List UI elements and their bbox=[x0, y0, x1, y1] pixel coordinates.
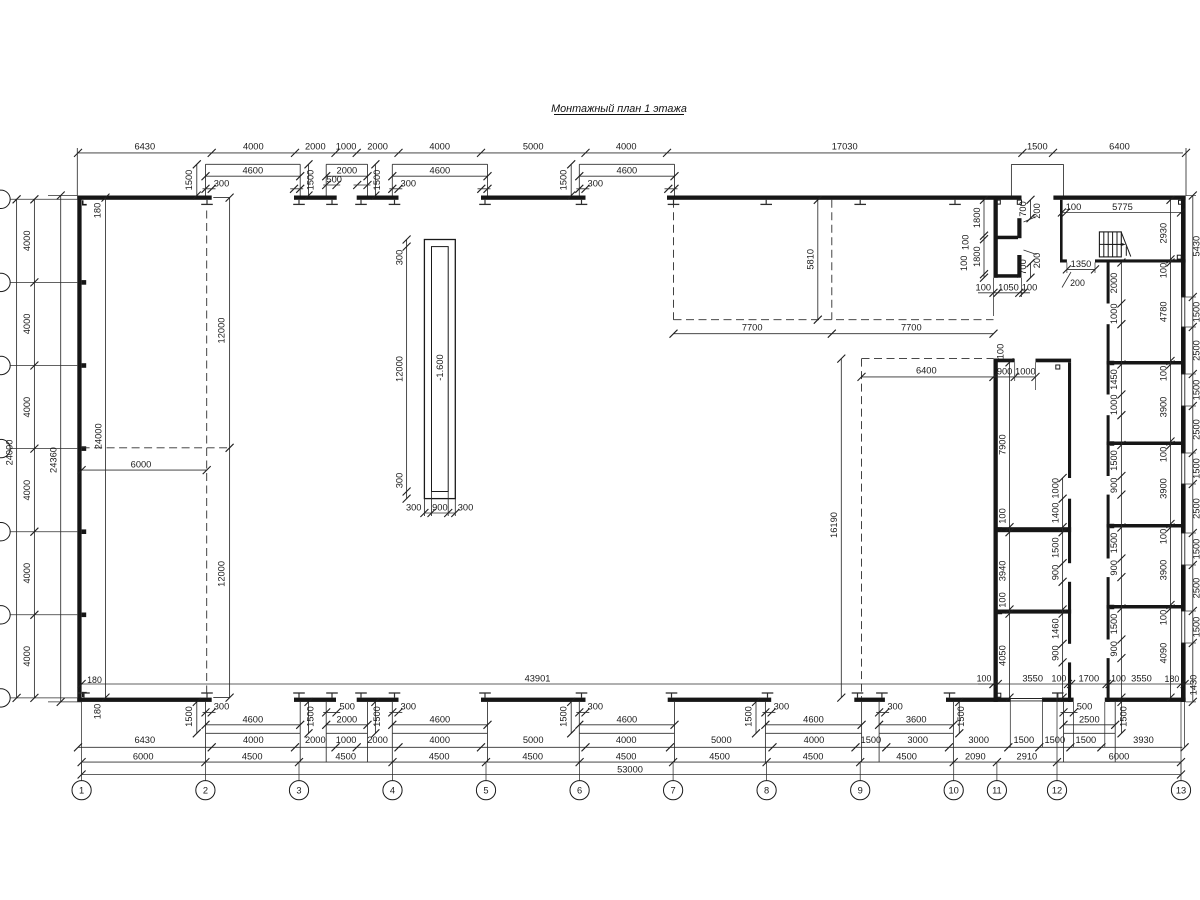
svg-text:9: 9 bbox=[858, 786, 863, 796]
svg-text:-1.600: -1.600 bbox=[435, 354, 445, 380]
svg-text:6400: 6400 bbox=[1109, 141, 1130, 151]
svg-text:300: 300 bbox=[214, 702, 230, 712]
svg-text:2000: 2000 bbox=[367, 141, 388, 151]
svg-text:5775: 5775 bbox=[1112, 202, 1133, 212]
svg-text:1500: 1500 bbox=[1027, 141, 1048, 151]
svg-text:2000: 2000 bbox=[305, 735, 326, 745]
svg-text:2500: 2500 bbox=[1192, 419, 1200, 440]
svg-text:300: 300 bbox=[887, 702, 903, 712]
svg-text:4600: 4600 bbox=[617, 165, 638, 175]
svg-text:3600: 3600 bbox=[906, 714, 927, 724]
svg-text:180: 180 bbox=[1165, 674, 1180, 684]
svg-text:100: 100 bbox=[1158, 610, 1168, 626]
svg-text:1500: 1500 bbox=[372, 706, 382, 727]
svg-text:7900: 7900 bbox=[997, 434, 1007, 455]
svg-text:1350: 1350 bbox=[1071, 259, 1092, 269]
svg-text:1500: 1500 bbox=[372, 170, 382, 191]
svg-text:2500: 2500 bbox=[1079, 714, 1100, 724]
svg-text:700: 700 bbox=[1018, 259, 1028, 275]
svg-text:300: 300 bbox=[458, 503, 474, 513]
svg-text:300: 300 bbox=[401, 702, 417, 712]
svg-text:1500: 1500 bbox=[1109, 450, 1119, 471]
svg-text:4050: 4050 bbox=[997, 645, 1007, 666]
svg-text:2000: 2000 bbox=[305, 141, 326, 151]
svg-text:700: 700 bbox=[1018, 201, 1028, 217]
svg-text:100: 100 bbox=[977, 674, 992, 684]
svg-text:100: 100 bbox=[1158, 529, 1168, 545]
svg-text:3900: 3900 bbox=[1158, 560, 1168, 581]
svg-text:3900: 3900 bbox=[1158, 397, 1168, 418]
svg-text:2500: 2500 bbox=[1192, 578, 1200, 599]
svg-text:1800: 1800 bbox=[972, 246, 982, 267]
svg-text:4000: 4000 bbox=[22, 397, 32, 418]
svg-text:1500: 1500 bbox=[956, 706, 966, 727]
svg-text:4500: 4500 bbox=[709, 752, 730, 762]
svg-text:4000: 4000 bbox=[22, 314, 32, 335]
svg-text:4600: 4600 bbox=[242, 165, 263, 175]
svg-text:6000: 6000 bbox=[133, 752, 154, 762]
svg-text:2000: 2000 bbox=[367, 735, 388, 745]
svg-text:1400: 1400 bbox=[1050, 503, 1060, 524]
svg-text:2000: 2000 bbox=[1109, 273, 1119, 294]
svg-text:4600: 4600 bbox=[803, 714, 824, 724]
svg-text:300: 300 bbox=[588, 702, 604, 712]
svg-text:900: 900 bbox=[997, 366, 1013, 376]
svg-text:5000: 5000 bbox=[711, 735, 732, 745]
svg-text:1500: 1500 bbox=[1192, 458, 1200, 479]
svg-text:12: 12 bbox=[1052, 786, 1062, 796]
svg-text:4000: 4000 bbox=[22, 230, 32, 251]
svg-text:3900: 3900 bbox=[1158, 478, 1168, 499]
svg-text:7700: 7700 bbox=[742, 323, 763, 333]
svg-text:4600: 4600 bbox=[242, 714, 263, 724]
svg-text:1500: 1500 bbox=[1044, 735, 1065, 745]
svg-text:43901: 43901 bbox=[525, 674, 551, 684]
svg-text:100: 100 bbox=[960, 235, 970, 251]
svg-text:17030: 17030 bbox=[832, 141, 858, 151]
svg-text:6000: 6000 bbox=[131, 459, 152, 469]
svg-text:2000: 2000 bbox=[337, 714, 358, 724]
svg-text:500: 500 bbox=[326, 175, 342, 185]
svg-text:3550: 3550 bbox=[1131, 674, 1152, 684]
svg-text:100: 100 bbox=[996, 344, 1006, 360]
svg-text:1500: 1500 bbox=[1013, 735, 1034, 745]
svg-text:4500: 4500 bbox=[335, 752, 356, 762]
svg-text:4000: 4000 bbox=[22, 563, 32, 584]
svg-text:5: 5 bbox=[483, 786, 488, 796]
svg-text:1500: 1500 bbox=[1109, 533, 1119, 554]
svg-text:4000: 4000 bbox=[243, 735, 264, 745]
svg-text:900: 900 bbox=[432, 503, 448, 513]
svg-text:10: 10 bbox=[949, 786, 959, 796]
svg-text:100: 100 bbox=[997, 592, 1007, 608]
svg-text:1430: 1430 bbox=[1189, 675, 1199, 696]
svg-text:2910: 2910 bbox=[1017, 752, 1038, 762]
svg-text:1000: 1000 bbox=[1015, 366, 1036, 376]
svg-text:200: 200 bbox=[1032, 253, 1042, 269]
svg-text:1450: 1450 bbox=[1109, 369, 1119, 390]
svg-text:200: 200 bbox=[1070, 278, 1085, 288]
svg-text:3000: 3000 bbox=[907, 735, 928, 745]
svg-text:1050: 1050 bbox=[998, 282, 1019, 292]
svg-text:12000: 12000 bbox=[217, 561, 227, 587]
svg-text:100: 100 bbox=[1066, 202, 1082, 212]
svg-text:3550: 3550 bbox=[1022, 674, 1043, 684]
svg-text:500: 500 bbox=[339, 702, 355, 712]
svg-text:2500: 2500 bbox=[1192, 340, 1200, 361]
svg-text:4090: 4090 bbox=[1158, 643, 1168, 664]
svg-text:1000: 1000 bbox=[1109, 303, 1119, 324]
svg-text:100: 100 bbox=[1158, 263, 1168, 279]
svg-text:300: 300 bbox=[395, 250, 405, 266]
svg-text:1500: 1500 bbox=[1192, 617, 1200, 638]
svg-text:100: 100 bbox=[1158, 366, 1168, 382]
svg-text:24000: 24000 bbox=[93, 423, 103, 449]
svg-text:1500: 1500 bbox=[1192, 539, 1200, 560]
svg-text:4000: 4000 bbox=[429, 735, 450, 745]
svg-text:4: 4 bbox=[390, 786, 395, 796]
svg-text:1500: 1500 bbox=[1050, 537, 1060, 558]
svg-text:300: 300 bbox=[774, 702, 790, 712]
svg-text:1500: 1500 bbox=[861, 735, 882, 745]
svg-text:300: 300 bbox=[401, 178, 417, 188]
svg-text:1500: 1500 bbox=[1118, 706, 1128, 727]
svg-text:100: 100 bbox=[959, 256, 969, 272]
svg-text:6000: 6000 bbox=[1109, 752, 1130, 762]
svg-text:6430: 6430 bbox=[134, 735, 155, 745]
svg-text:100: 100 bbox=[1111, 674, 1126, 684]
svg-text:1000: 1000 bbox=[1050, 478, 1060, 499]
svg-text:4600: 4600 bbox=[430, 714, 451, 724]
svg-text:900: 900 bbox=[1050, 565, 1060, 581]
svg-text:7: 7 bbox=[671, 786, 676, 796]
svg-text:1500: 1500 bbox=[184, 170, 194, 191]
svg-text:1500: 1500 bbox=[1192, 380, 1200, 401]
svg-text:1500: 1500 bbox=[1192, 302, 1200, 323]
svg-text:180: 180 bbox=[92, 203, 102, 219]
svg-text:13: 13 bbox=[1176, 786, 1186, 796]
svg-text:4600: 4600 bbox=[430, 165, 451, 175]
svg-text:2: 2 bbox=[203, 786, 208, 796]
svg-text:100: 100 bbox=[976, 282, 992, 292]
svg-text:4000: 4000 bbox=[243, 141, 264, 151]
svg-text:16190: 16190 bbox=[829, 512, 839, 538]
svg-text:300: 300 bbox=[406, 503, 422, 513]
svg-text:53000: 53000 bbox=[617, 765, 643, 775]
svg-text:4000: 4000 bbox=[616, 141, 637, 151]
svg-text:1: 1 bbox=[79, 786, 84, 796]
svg-text:900: 900 bbox=[1109, 641, 1119, 657]
svg-text:5000: 5000 bbox=[523, 735, 544, 745]
svg-text:6400: 6400 bbox=[916, 365, 937, 375]
svg-text:300: 300 bbox=[214, 178, 230, 188]
svg-text:6: 6 bbox=[577, 786, 582, 796]
svg-text:2090: 2090 bbox=[965, 752, 986, 762]
svg-text:1800: 1800 bbox=[972, 207, 982, 228]
svg-text:11: 11 bbox=[992, 786, 1002, 796]
svg-text:24000: 24000 bbox=[4, 440, 14, 466]
svg-text:1000: 1000 bbox=[336, 735, 357, 745]
svg-text:4000: 4000 bbox=[804, 735, 825, 745]
svg-text:5000: 5000 bbox=[523, 141, 544, 151]
svg-text:5430: 5430 bbox=[1192, 236, 1200, 257]
svg-text:5810: 5810 bbox=[805, 249, 815, 270]
svg-text:3000: 3000 bbox=[968, 735, 989, 745]
svg-text:1500: 1500 bbox=[1109, 614, 1119, 635]
svg-text:500: 500 bbox=[1077, 702, 1093, 712]
svg-text:3930: 3930 bbox=[1133, 735, 1154, 745]
svg-text:2930: 2930 bbox=[1158, 223, 1168, 244]
svg-text:180: 180 bbox=[93, 704, 103, 720]
svg-text:1000: 1000 bbox=[336, 141, 357, 151]
svg-text:3940: 3940 bbox=[997, 561, 1007, 582]
svg-text:900: 900 bbox=[1050, 645, 1060, 661]
svg-text:4500: 4500 bbox=[242, 752, 263, 762]
svg-text:1500: 1500 bbox=[744, 706, 754, 727]
svg-text:1700: 1700 bbox=[1078, 674, 1099, 684]
svg-text:200: 200 bbox=[1032, 203, 1042, 219]
svg-text:1500: 1500 bbox=[558, 706, 568, 727]
svg-text:4500: 4500 bbox=[522, 752, 543, 762]
svg-text:4500: 4500 bbox=[429, 752, 450, 762]
svg-text:100: 100 bbox=[1158, 447, 1168, 463]
svg-text:3: 3 bbox=[296, 786, 301, 796]
svg-text:900: 900 bbox=[1109, 478, 1119, 494]
svg-text:180: 180 bbox=[87, 675, 102, 685]
svg-text:2500: 2500 bbox=[1192, 498, 1200, 519]
svg-text:4000: 4000 bbox=[616, 735, 637, 745]
svg-text:4000: 4000 bbox=[22, 646, 32, 667]
svg-text:100: 100 bbox=[997, 508, 1007, 524]
svg-text:1000: 1000 bbox=[1109, 394, 1119, 415]
svg-text:12000: 12000 bbox=[217, 318, 227, 344]
svg-text:1500: 1500 bbox=[1076, 735, 1097, 745]
svg-text:1460: 1460 bbox=[1050, 618, 1060, 639]
svg-text:4000: 4000 bbox=[22, 480, 32, 501]
svg-text:Монтажный план 1 этажа: Монтажный план 1 этажа bbox=[551, 103, 687, 115]
svg-text:12000: 12000 bbox=[395, 356, 405, 382]
svg-text:8: 8 bbox=[764, 786, 769, 796]
svg-text:300: 300 bbox=[395, 473, 405, 489]
svg-text:100: 100 bbox=[1022, 282, 1038, 292]
svg-text:100: 100 bbox=[1052, 674, 1067, 684]
svg-text:4500: 4500 bbox=[896, 752, 917, 762]
svg-text:4500: 4500 bbox=[803, 752, 824, 762]
svg-text:6430: 6430 bbox=[134, 141, 155, 151]
svg-text:4500: 4500 bbox=[616, 752, 637, 762]
svg-text:1500: 1500 bbox=[558, 170, 568, 191]
svg-text:7700: 7700 bbox=[901, 323, 922, 333]
svg-text:1500: 1500 bbox=[305, 706, 315, 727]
svg-text:4600: 4600 bbox=[617, 714, 638, 724]
svg-text:4780: 4780 bbox=[1158, 301, 1168, 322]
svg-text:4000: 4000 bbox=[429, 141, 450, 151]
svg-text:900: 900 bbox=[1109, 560, 1119, 576]
svg-text:1500: 1500 bbox=[184, 706, 194, 727]
svg-text:24360: 24360 bbox=[49, 447, 59, 473]
svg-text:1500: 1500 bbox=[305, 170, 315, 191]
svg-text:300: 300 bbox=[588, 178, 604, 188]
